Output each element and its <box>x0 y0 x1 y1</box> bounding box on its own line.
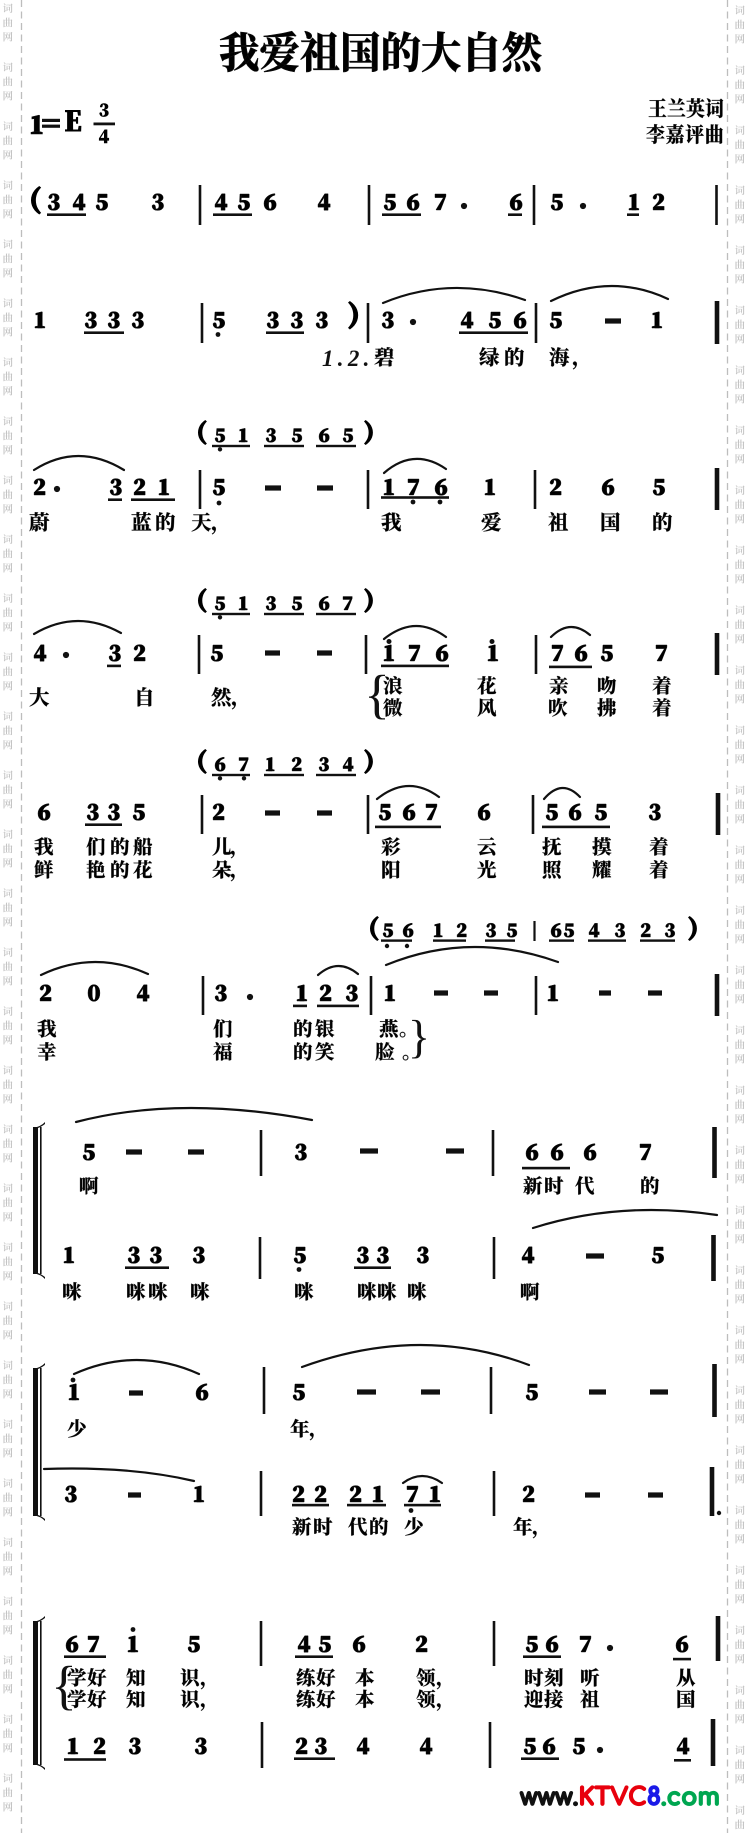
svg-text:}: } <box>408 1012 430 1063</box>
svg-text:{: { <box>51 1656 77 1716</box>
svg-text:1.2.: 1.2. <box>322 346 374 371</box>
